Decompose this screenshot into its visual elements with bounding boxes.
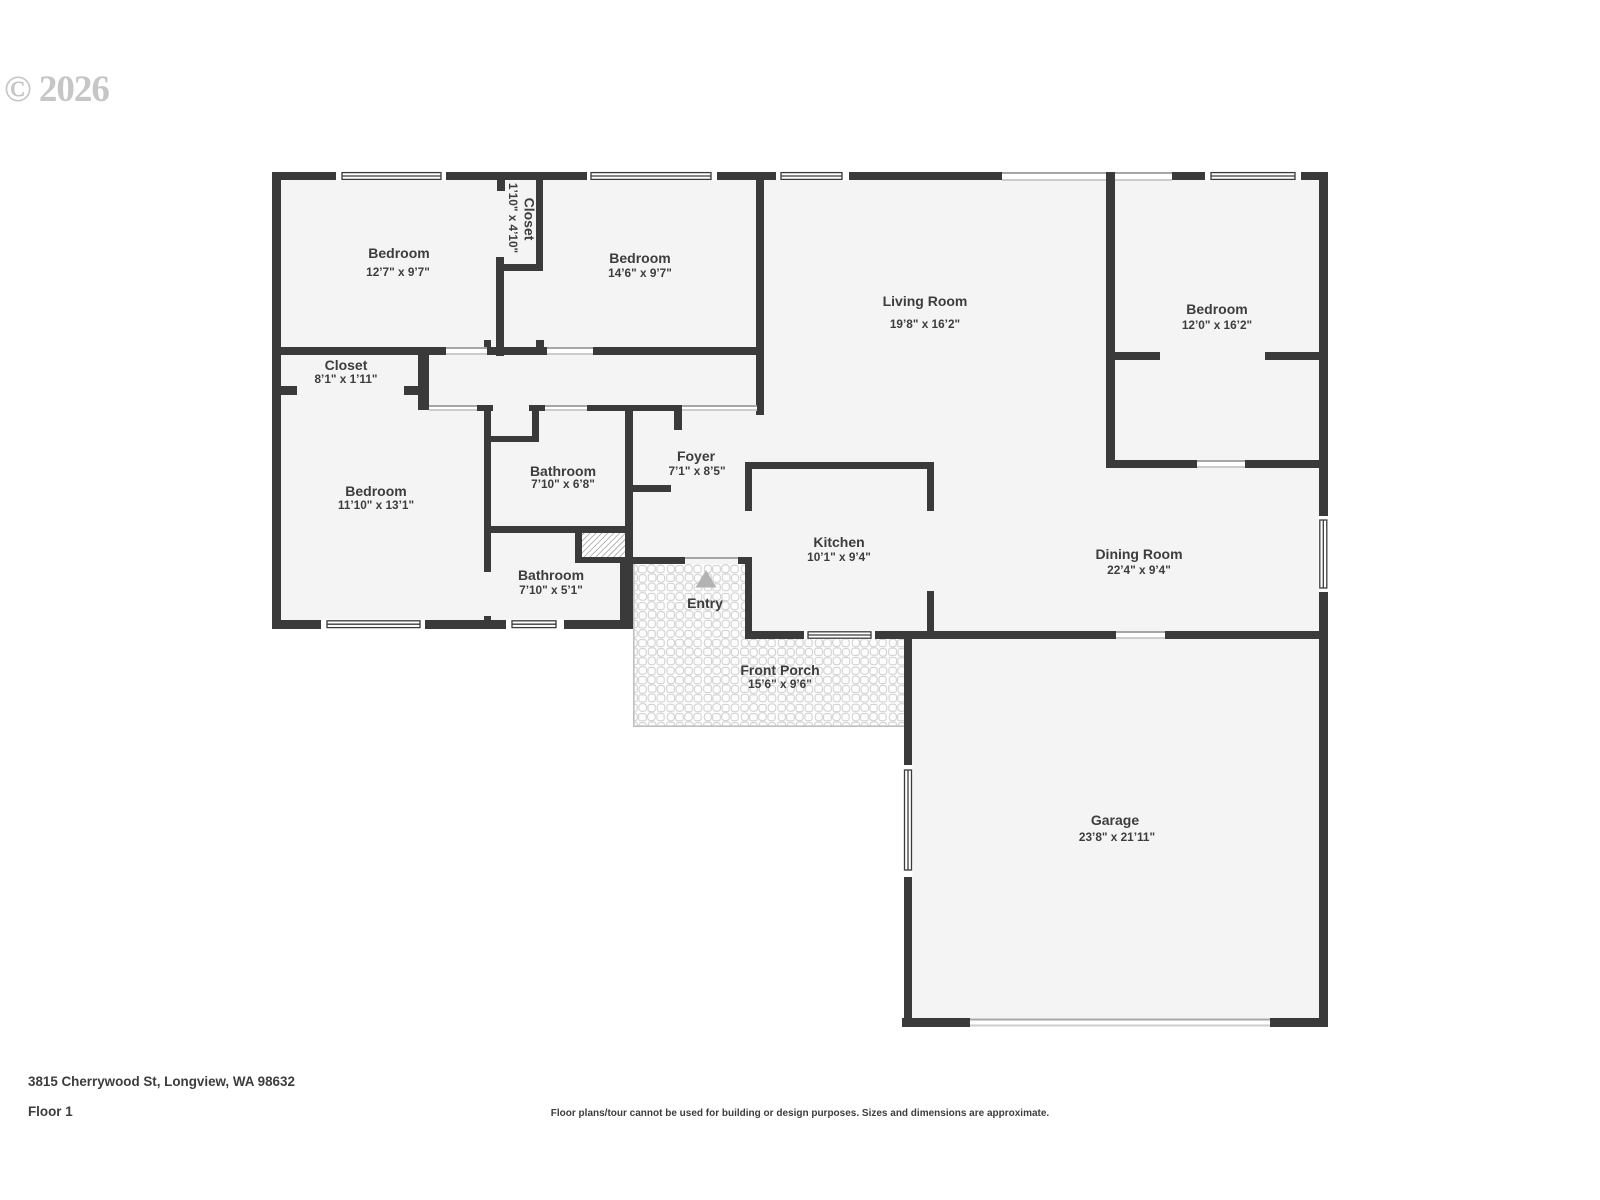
svg-text:Entry: Entry [687,595,723,611]
svg-text:7’10" x 5’1": 7’10" x 5’1" [519,583,583,597]
svg-text:Bedroom: Bedroom [345,483,406,499]
svg-text:7’10" x 6’8": 7’10" x 6’8" [531,477,595,491]
svg-text:Living Room: Living Room [883,293,968,309]
svg-text:15’6" x 9’6": 15’6" x 9’6" [748,677,812,691]
svg-text:Front Porch: Front Porch [740,662,819,678]
svg-text:3815 Cherrywood St, Longview,: 3815 Cherrywood St, Longview, WA 98632 [28,1074,295,1089]
svg-text:23’8" x 21’11": 23’8" x 21’11" [1079,830,1155,844]
svg-text:7’1" x 8’5": 7’1" x 8’5" [668,464,725,478]
svg-text:Closet: Closet [325,357,368,373]
svg-text:Floor 1: Floor 1 [28,1104,73,1119]
svg-text:1’10" x 4’10": 1’10" x 4’10" [506,183,520,253]
svg-text:Dining Room: Dining Room [1095,546,1182,562]
svg-text:22’4" x 9’4": 22’4" x 9’4" [1107,563,1171,577]
svg-text:8’1" x 1’11": 8’1" x 1’11" [314,372,377,386]
svg-text:19’8" x 16’2": 19’8" x 16’2" [890,317,960,331]
svg-text:Closet: Closet [522,198,538,241]
svg-text:11’10" x 13’1": 11’10" x 13’1" [338,498,414,512]
svg-text:Foyer: Foyer [677,448,716,464]
svg-text:Garage: Garage [1091,812,1139,828]
svg-text:Bedroom: Bedroom [368,245,429,261]
svg-text:Floor plans/tour cannot be use: Floor plans/tour cannot be used for buil… [551,1108,1050,1119]
svg-text:Bedroom: Bedroom [609,250,670,266]
svg-text:© 2026: © 2026 [4,69,109,110]
svg-text:14’6" x 9’7": 14’6" x 9’7" [608,266,672,280]
svg-text:Bedroom: Bedroom [1186,301,1247,317]
svg-text:12’0" x 16’2": 12’0" x 16’2" [1182,318,1252,332]
svg-text:10’1" x 9’4": 10’1" x 9’4" [807,550,871,564]
svg-text:12’7" x 9’7": 12’7" x 9’7" [366,265,430,279]
svg-text:Bathroom: Bathroom [518,567,584,583]
svg-text:Kitchen: Kitchen [813,534,864,550]
